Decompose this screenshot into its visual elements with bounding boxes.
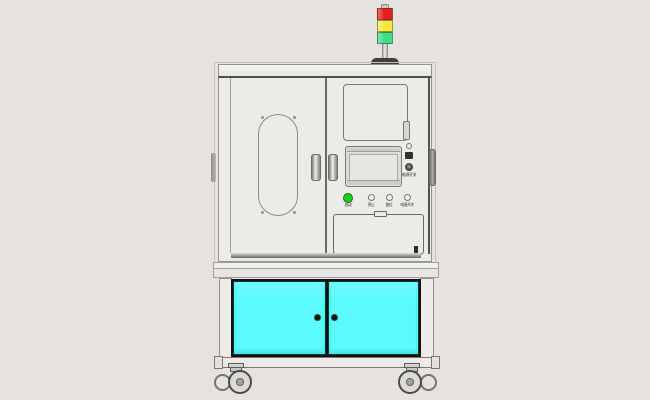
right-door-handle[interactable]: [328, 154, 338, 181]
left-door-handle[interactable]: [311, 154, 321, 181]
power-button-label: 电源开关: [397, 204, 417, 208]
lower-left-door[interactable]: [233, 281, 326, 355]
caster-wheel: [228, 370, 252, 394]
screen-display[interactable]: [349, 154, 398, 181]
start-button[interactable]: [343, 193, 353, 203]
screen-bezel-top: [347, 148, 400, 152]
start-button-label: 启动: [341, 204, 356, 208]
control-screen[interactable]: [345, 146, 402, 187]
stop-button-label: 停止: [364, 204, 379, 208]
reset-button[interactable]: [386, 194, 393, 201]
machine-front-view: 电源开关 启动 停止 复位 电源开关: [0, 0, 650, 400]
tower-lamp-red: [377, 8, 393, 20]
reset-button-label: 复位: [382, 204, 397, 208]
cabinet-top-band: [218, 64, 432, 78]
base-end-cap: [431, 356, 440, 369]
toggle-switch[interactable]: [405, 152, 413, 159]
base-end-cap: [214, 356, 223, 369]
table-frame-band: [213, 268, 439, 278]
lower-right-post: [420, 278, 434, 358]
indicator-lamp: [406, 143, 412, 149]
caster-hub: [406, 378, 414, 386]
power-button[interactable]: [404, 194, 411, 201]
tower-lamp-yellow: [377, 20, 393, 32]
caster-hub: [236, 378, 244, 386]
drawer-latch-tab[interactable]: [374, 211, 387, 217]
caster-wheel: [398, 370, 422, 394]
screw-dot: [293, 116, 296, 119]
door-bottom-shadow: [231, 253, 421, 258]
screen-bezel-bottom: [347, 180, 400, 185]
viewing-window: [258, 114, 298, 216]
caster-swivel-ring: [420, 374, 437, 391]
access-window-handle[interactable]: [403, 121, 410, 140]
drawer-keyhole[interactable]: [414, 246, 418, 253]
left-side-hinge: [211, 153, 216, 182]
key-switch[interactable]: [405, 163, 413, 171]
lower-left-door-knob[interactable]: [314, 314, 321, 321]
tower-lamp-green: [377, 32, 393, 44]
screw-dot: [293, 211, 296, 214]
lower-right-door[interactable]: [328, 281, 419, 355]
screw-dot: [261, 116, 264, 119]
access-window: [343, 84, 408, 141]
power-switch-label: 电源开关: [399, 174, 420, 178]
door-divider: [325, 78, 327, 254]
stop-button[interactable]: [368, 194, 375, 201]
right-side-handle[interactable]: [429, 149, 436, 186]
screw-dot: [261, 211, 264, 214]
lower-right-door-knob[interactable]: [331, 314, 338, 321]
drawer-panel[interactable]: [333, 214, 424, 255]
